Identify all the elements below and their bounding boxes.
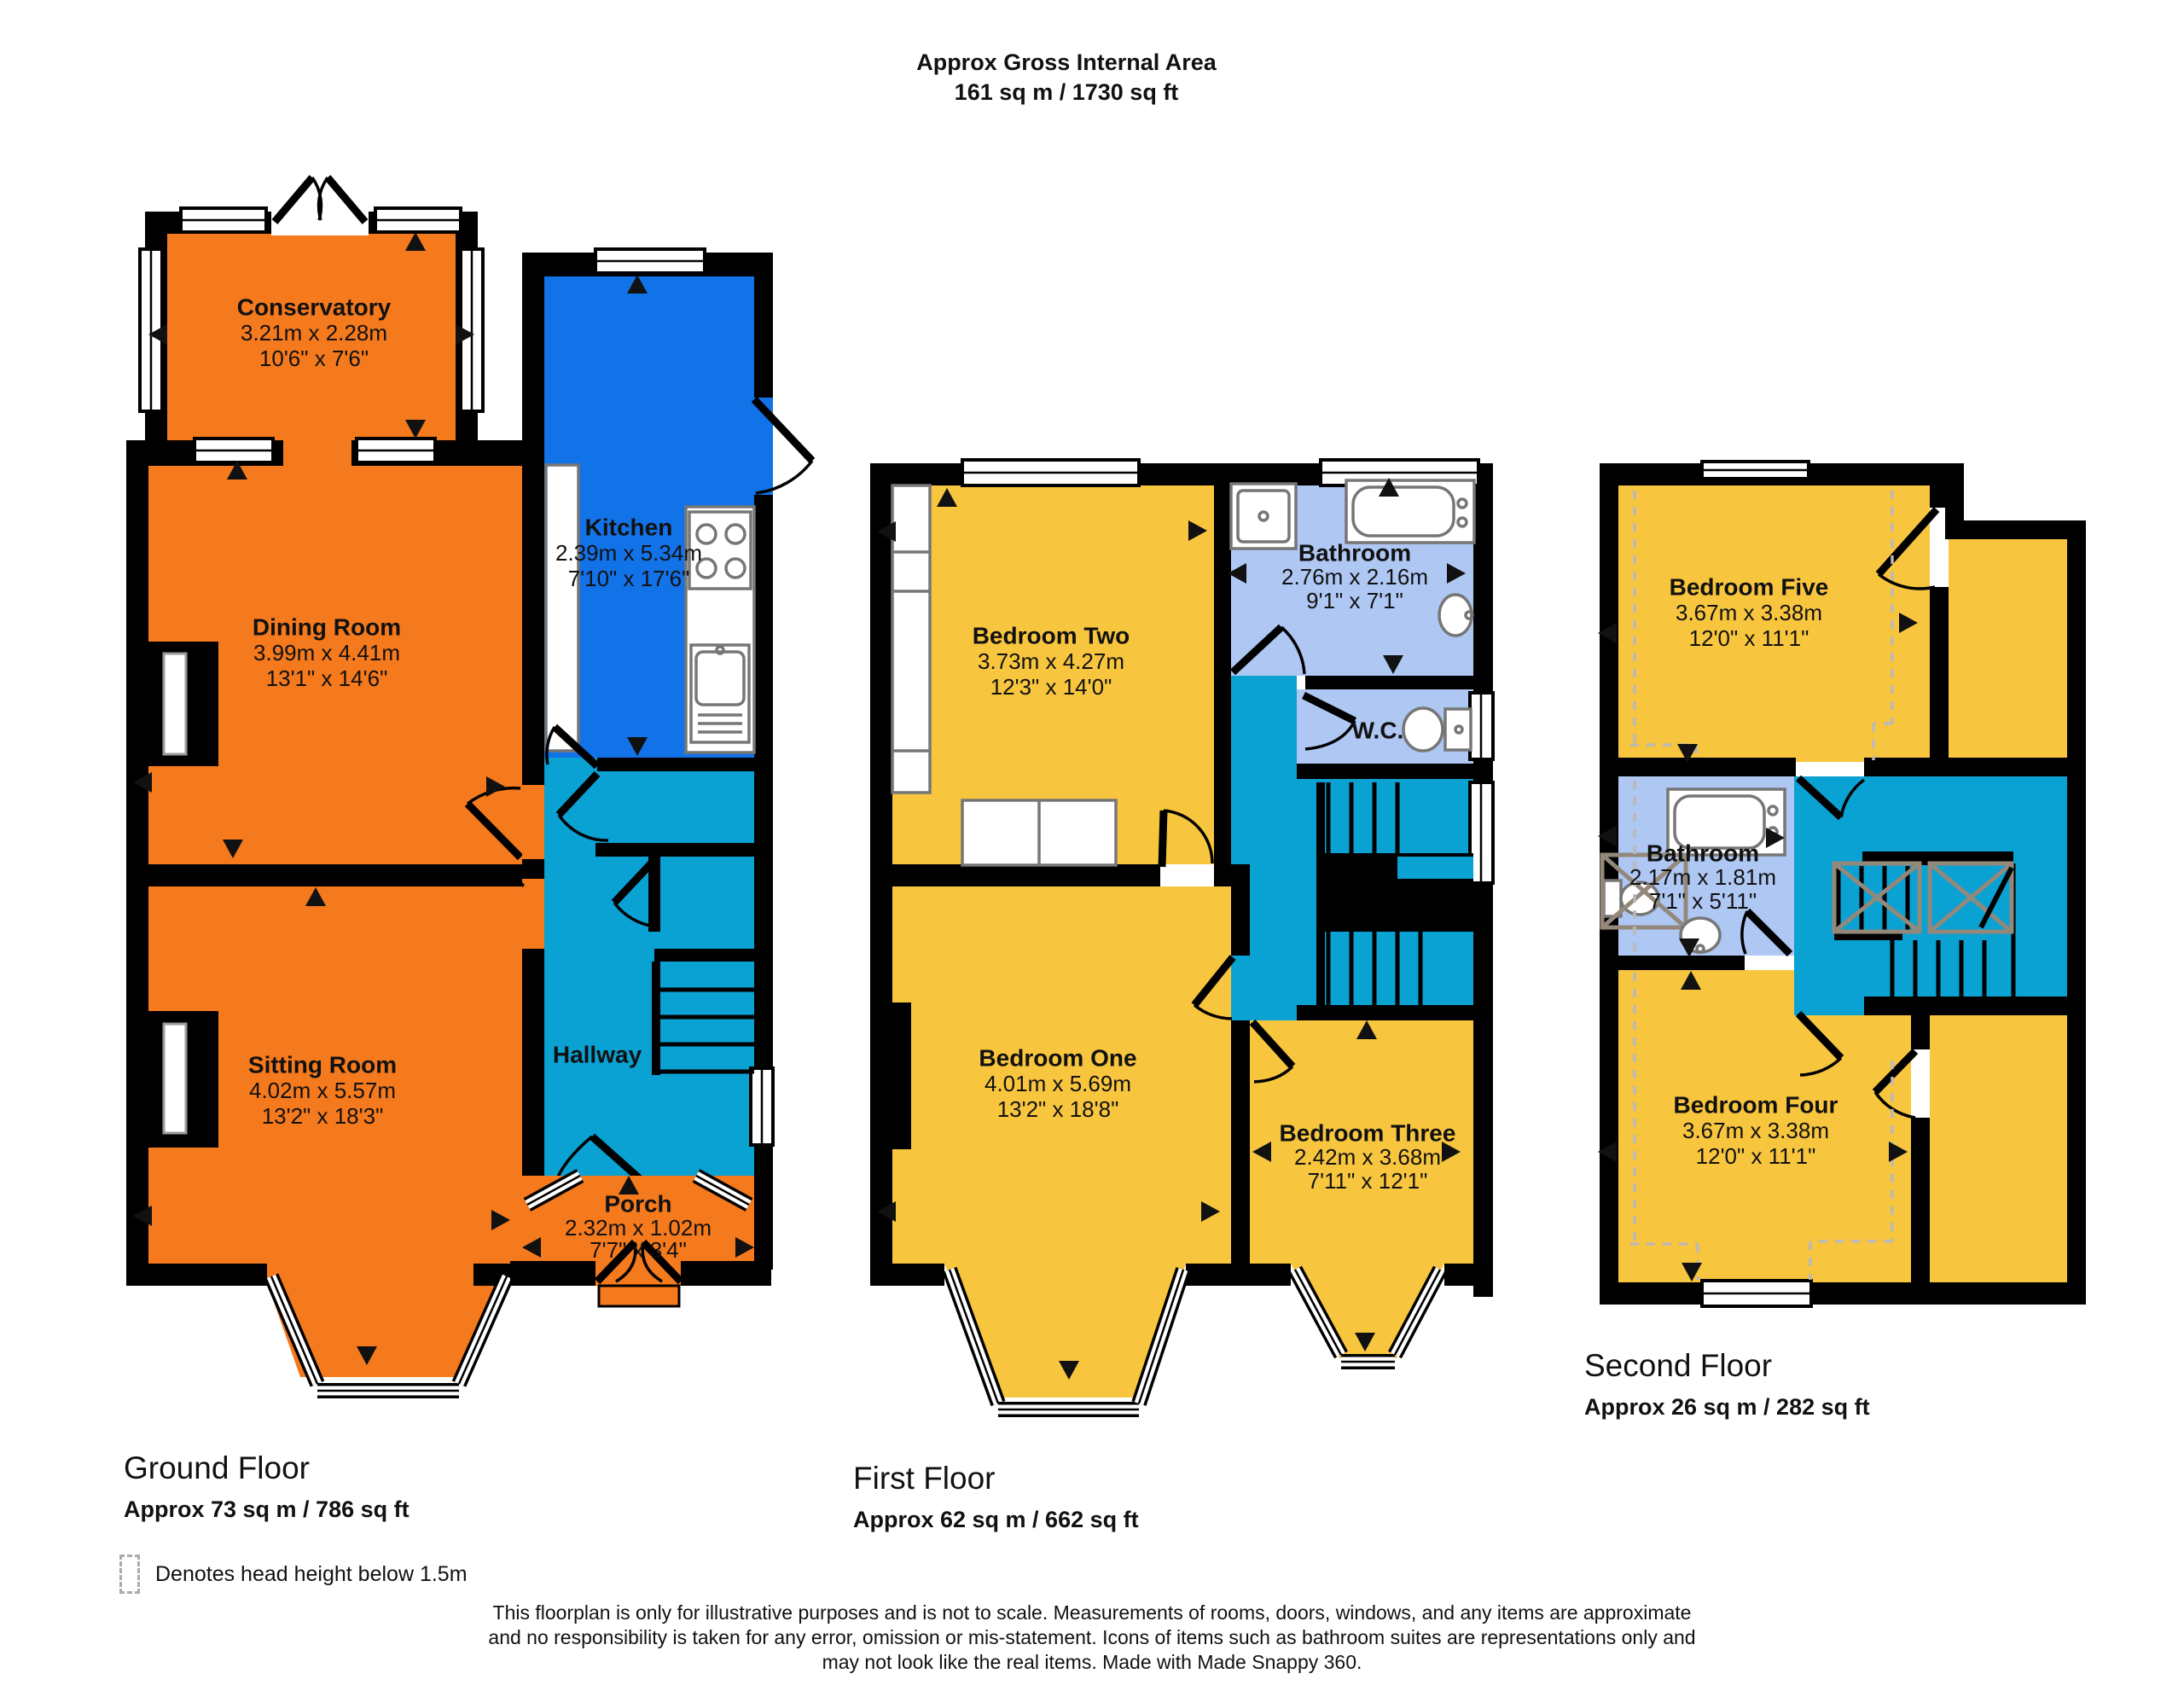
svg-text:3.67m x 3.38m: 3.67m x 3.38m — [1682, 1118, 1829, 1143]
second-floor-caption: Second Floor Approx 26 sq m / 282 sq ft — [1584, 1348, 1870, 1421]
first-floor-area: Approx 62 sq m / 662 sq ft — [853, 1507, 1139, 1533]
room-label-bathroom-second: Bathroom — [1647, 840, 1759, 866]
second-floor-name: Second Floor — [1584, 1348, 1870, 1384]
head-height-legend-icon — [119, 1555, 140, 1594]
shower-icon — [1231, 484, 1296, 549]
first-floor-caption: First Floor Approx 62 sq m / 662 sq ft — [853, 1461, 1139, 1533]
svg-text:12'0" x 11'1": 12'0" x 11'1" — [1696, 1143, 1816, 1169]
floorplan-page: Approx Gross Internal Area 161 sq m / 17… — [0, 0, 2184, 1697]
landing-first — [1231, 676, 1297, 1020]
svg-text:7'1" x 5'11": 7'1" x 5'11" — [1649, 888, 1757, 914]
room-label-dining: Dining Room — [253, 613, 401, 640]
svg-text:2.17m x 1.81m: 2.17m x 1.81m — [1629, 864, 1776, 890]
svg-text:3.21m x 2.28m: 3.21m x 2.28m — [241, 320, 387, 346]
svg-text:13'2" x 18'8": 13'2" x 18'8" — [997, 1096, 1119, 1122]
room-label-hallway: Hallway — [553, 1041, 642, 1067]
svg-text:3.67m x 3.38m: 3.67m x 3.38m — [1676, 600, 1822, 625]
svg-text:13'2" x 18'3": 13'2" x 18'3" — [262, 1103, 384, 1129]
ground-floor-name: Ground Floor — [124, 1450, 409, 1486]
toilet-icon — [1403, 708, 1471, 751]
disclaimer-text: This floorplan is only for illustrative … — [478, 1601, 1706, 1675]
svg-text:7'10" x 17'6": 7'10" x 17'6" — [568, 566, 690, 591]
svg-text:7'7" x 3'4": 7'7" x 3'4" — [590, 1237, 687, 1263]
room-label-bathroom-first: Bathroom — [1298, 539, 1411, 566]
svg-text:10'6" x 7'6": 10'6" x 7'6" — [259, 346, 369, 371]
first-floor-plan: Bedroom Two 3.73m x 4.27m 12'3" x 14'0" … — [870, 460, 1493, 1409]
second-floor-plan: Bedroom Five 3.67m x 3.38m 12'0" x 11'1"… — [1598, 462, 2086, 1306]
room-label-conservatory: Conservatory — [237, 293, 392, 320]
room-label-bedroom-four: Bedroom Four — [1674, 1091, 1838, 1118]
svg-text:13'1" x 14'6": 13'1" x 14'6" — [266, 665, 388, 691]
room-label-bedroom-three: Bedroom Three — [1280, 1119, 1456, 1146]
room-label-bedroom-one: Bedroom One — [979, 1044, 1136, 1071]
room-hallway — [544, 771, 754, 1191]
legend: Denotes head height below 1.5m — [119, 1555, 468, 1594]
eaves-room — [1930, 1015, 2067, 1282]
chimney-bedroom-one — [870, 1003, 911, 1149]
room-label-bedroom-five: Bedroom Five — [1670, 573, 1829, 600]
room-label-kitchen: Kitchen — [585, 514, 673, 540]
svg-text:2.76m x 2.16m: 2.76m x 2.16m — [1281, 564, 1428, 590]
svg-text:4.02m x 5.57m: 4.02m x 5.57m — [249, 1078, 396, 1103]
fireplace-sitting — [126, 1011, 218, 1148]
ground-floor-area: Approx 73 sq m / 786 sq ft — [124, 1496, 409, 1523]
svg-text:12'3" x 14'0": 12'3" x 14'0" — [990, 674, 1112, 700]
bath-icon — [1346, 480, 1474, 543]
svg-text:4.01m x 5.69m: 4.01m x 5.69m — [985, 1071, 1131, 1096]
svg-text:12'0" x 11'1": 12'0" x 11'1" — [1689, 625, 1809, 651]
room-label-porch: Porch — [604, 1190, 671, 1217]
room-label-sitting: Sitting Room — [248, 1051, 397, 1078]
svg-text:2.39m x 5.34m: 2.39m x 5.34m — [555, 540, 702, 566]
fireplace-dining — [126, 642, 218, 766]
svg-text:2.42m x 3.68m: 2.42m x 3.68m — [1294, 1144, 1441, 1170]
svg-text:3.99m x 4.41m: 3.99m x 4.41m — [253, 640, 400, 665]
svg-text:3.73m x 4.27m: 3.73m x 4.27m — [978, 648, 1124, 674]
ground-floor-caption: Ground Floor Approx 73 sq m / 786 sq ft — [124, 1450, 409, 1523]
svg-text:9'1" x 7'1": 9'1" x 7'1" — [1306, 588, 1403, 613]
second-floor-area: Approx 26 sq m / 282 sq ft — [1584, 1394, 1870, 1421]
room-label-wc: W.C. — [1352, 717, 1404, 743]
kitchen-units — [546, 465, 578, 751]
basin-icon — [1439, 595, 1472, 636]
room-label-bedroom-two: Bedroom Two — [973, 622, 1130, 648]
first-floor-name: First Floor — [853, 1461, 1139, 1496]
sink-icon — [691, 645, 749, 742]
legend-text: Denotes head height below 1.5m — [155, 1562, 468, 1587]
ground-floor-plan: Conservatory 3.21m x 2.28m 10'6" x 7'6" … — [126, 177, 812, 1391]
svg-text:7'11" x 12'1": 7'11" x 12'1" — [1308, 1168, 1428, 1194]
